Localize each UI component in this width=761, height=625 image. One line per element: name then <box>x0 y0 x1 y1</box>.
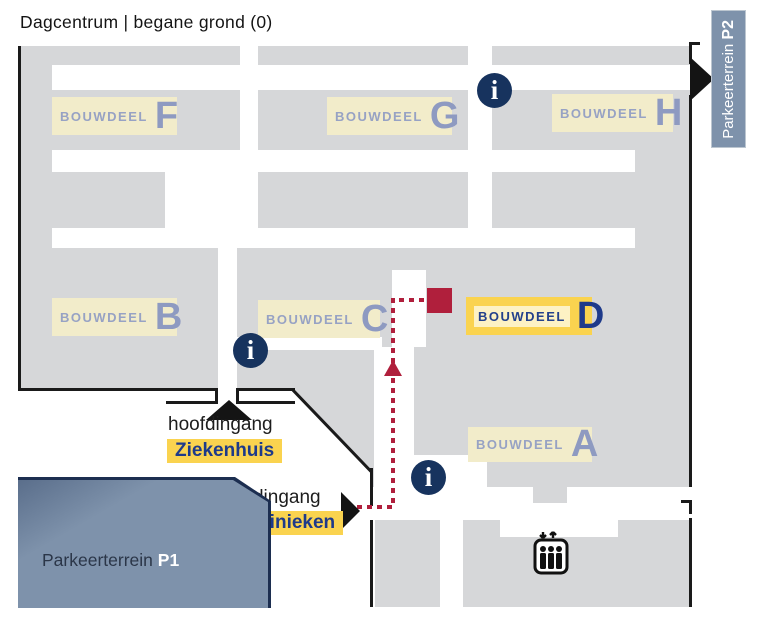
outline-wall-lower <box>370 520 373 607</box>
courtyard <box>165 172 258 228</box>
outline-left <box>18 46 21 390</box>
parking-p2: Parkeerterrein P2 <box>711 10 746 148</box>
page-title: Dagcentrum | begane grond (0) <box>20 12 273 33</box>
info-icon: i <box>411 460 446 495</box>
outline-right-bracket <box>689 500 692 514</box>
outline-right-bottom <box>689 518 692 607</box>
outline-right <box>689 95 692 487</box>
building-label-D: BOUWDEEL D <box>466 297 592 335</box>
entrance-name-ziekenhuis: Ziekenhuis <box>167 439 282 463</box>
parking-p1-surface <box>18 480 268 608</box>
route-direction-arrow-icon <box>384 360 402 376</box>
building-prefix: BOUWDEEL <box>474 306 570 327</box>
elevator-icon <box>532 530 570 576</box>
parking-p1-label: Parkeerterrein P1 <box>42 550 179 571</box>
corridor-top <box>52 65 692 90</box>
route-segment-top <box>399 298 427 302</box>
building-tab <box>533 487 567 503</box>
corridor-mid1 <box>52 150 635 172</box>
route-segment-bottom <box>357 505 393 509</box>
corridor-mid2 <box>52 228 635 248</box>
building-letter: C <box>361 303 388 335</box>
entrance-caption-ziekenhuis: hoofdingang <box>168 414 273 436</box>
building-prefix: BOUWDEEL <box>476 437 564 452</box>
info-icon: i <box>233 333 268 368</box>
corridor-b-c <box>218 248 237 390</box>
building-prefix: BOUWDEEL <box>60 109 148 124</box>
parking-p1-text: Parkeerterrein <box>42 550 153 570</box>
info-icon: i <box>477 73 512 108</box>
outline-right-top-tick <box>692 42 700 45</box>
floorplan-map: Dagcentrum | begane grond (0) BOUWDEEL F… <box>0 0 761 625</box>
building-letter: A <box>571 428 598 460</box>
entrance-arrow-poliklinieken-icon <box>341 492 360 530</box>
corridor-bottom-vert <box>440 520 463 607</box>
building-label-F: BOUWDEEL F <box>52 97 177 135</box>
parking-p1: Parkeerterrein P1 <box>18 477 271 608</box>
building-prefix: BOUWDEEL <box>60 310 148 325</box>
route-notch <box>392 270 426 347</box>
building-label-B: BOUWDEEL B <box>52 298 177 336</box>
destination-marker <box>427 288 452 313</box>
parking-p1-code: P1 <box>158 550 179 570</box>
building-letter: H <box>655 97 682 129</box>
building-letter: B <box>155 301 182 333</box>
building-label-G: BOUWDEEL G <box>327 97 452 135</box>
parking-p2-text: Parkeerterrein <box>720 43 737 138</box>
route-segment-vertical <box>391 298 395 508</box>
parking-p2-label: Parkeerterrein P2 <box>720 20 738 139</box>
outline-right-bracket-tick <box>681 500 689 503</box>
outline-wall-upper <box>370 468 373 506</box>
corridor-vert-left <box>240 46 258 150</box>
building-letter: G <box>430 100 460 132</box>
building-label-A: BOUWDEEL A <box>468 427 592 462</box>
building-label-H: BOUWDEEL H <box>552 94 673 132</box>
building-prefix: BOUWDEEL <box>266 312 354 327</box>
outline-b-bottom <box>18 388 215 391</box>
building-prefix: BOUWDEEL <box>335 109 423 124</box>
building-prefix: BOUWDEEL <box>560 106 648 121</box>
outline-c-bottom <box>238 388 295 391</box>
building-letter: F <box>155 100 178 132</box>
building-label-C: BOUWDEEL C <box>258 300 380 338</box>
building-letter: D <box>577 300 604 332</box>
parking-p2-code: P2 <box>720 20 737 40</box>
